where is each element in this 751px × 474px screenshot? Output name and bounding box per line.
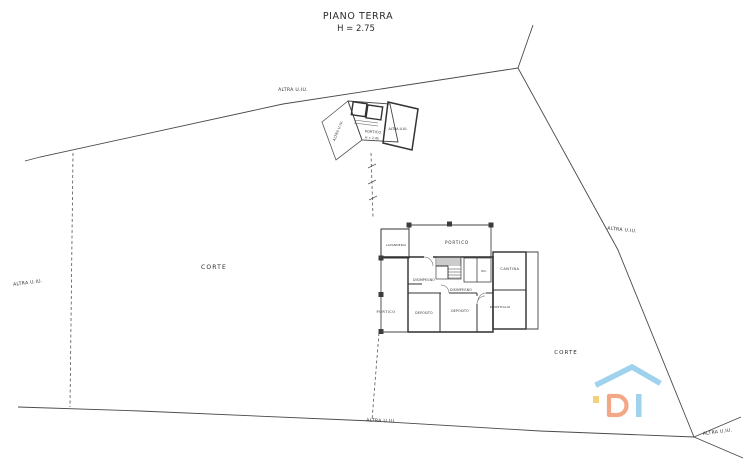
logo-letter-i — [636, 394, 642, 417]
altra-bottom-right-label: ALTRA U.IU. — [703, 427, 733, 437]
outbuilding-small-rooms — [351, 102, 383, 120]
boundary-top — [25, 68, 518, 161]
dashed-line-left — [70, 153, 73, 407]
lavanderia-label: LAVANDERIA — [386, 243, 406, 247]
cantina-label: CANTINA — [500, 267, 519, 271]
portico-top-pillars — [407, 222, 494, 228]
altra-top-label: ALTRA U.IU. — [278, 87, 308, 93]
page-subtitle-height: H = 2.75 — [337, 24, 375, 34]
wc-label: W.C. — [481, 269, 487, 273]
outbuilding-altra-room-label: ALTRA U.IU. — [388, 127, 407, 131]
wc-rooms: W.C. — [464, 258, 491, 282]
outbuilding-altra-strip — [322, 101, 362, 160]
outbuilding: ALTRA U.IU. PORTICO H = 2.45 ALTRA U.IU. — [322, 101, 418, 160]
portico-left — [379, 256, 409, 335]
portico-left-label: PORTICO — [377, 310, 396, 314]
page-title: PIANO TERRA — [323, 11, 393, 22]
staircase — [436, 257, 461, 279]
dashed-line-outbuilding — [371, 153, 373, 217]
corte-right-label: CORTE — [554, 350, 577, 356]
altra-bottom-label: ALTRA U.IU. — [366, 417, 396, 424]
boundary-spur-se — [694, 437, 743, 458]
outbuilding-portico-height-label: H = 2.45 — [365, 136, 379, 141]
ripostiglio-label: RIPOSTIGLIO — [490, 305, 511, 309]
disimpegno-center-label: DISIMPEGNO — [450, 288, 472, 292]
portico-top-label: PORTICO — [445, 240, 469, 245]
outbuilding-portico-label: PORTICO — [365, 129, 382, 134]
outbuilding-altra-strip-label: ALTRA U.IU. — [332, 120, 344, 142]
main-building: W.C. — [377, 222, 538, 335]
dimension-ticks — [368, 164, 377, 200]
logo-accent-square — [593, 396, 599, 403]
outbuilding-steps — [354, 120, 378, 126]
right-wing — [493, 252, 538, 329]
floor-plan-page: ALTRA U.IU. PORTICO H = 2.45 ALTRA U.IU. — [0, 0, 751, 474]
floor-plan-drawing: ALTRA U.IU. PORTICO H = 2.45 ALTRA U.IU. — [0, 0, 751, 474]
parcel-dashed-lines — [70, 153, 379, 420]
house-roof-icon — [598, 367, 658, 384]
altra-left-label: ALTRA U.IU. — [13, 278, 43, 288]
dashed-line-court — [372, 333, 379, 420]
central-block-outline — [381, 257, 493, 332]
logo-letter-d — [609, 396, 627, 415]
disimpegno-left-label: DISIMPEGNO — [413, 278, 435, 282]
altra-right-label: ALTRA U.IU. — [607, 225, 637, 234]
corte-left-label: CORTE — [201, 264, 227, 271]
deposito-center-label: DEPOSITO — [451, 309, 469, 313]
boundary-top-right-spur — [518, 25, 533, 68]
watermark-logo — [593, 367, 658, 417]
boundary-bottom — [18, 407, 694, 437]
outbuilding-altra-room — [383, 102, 418, 150]
deposito-left-label: DEPOSITO — [415, 311, 433, 315]
